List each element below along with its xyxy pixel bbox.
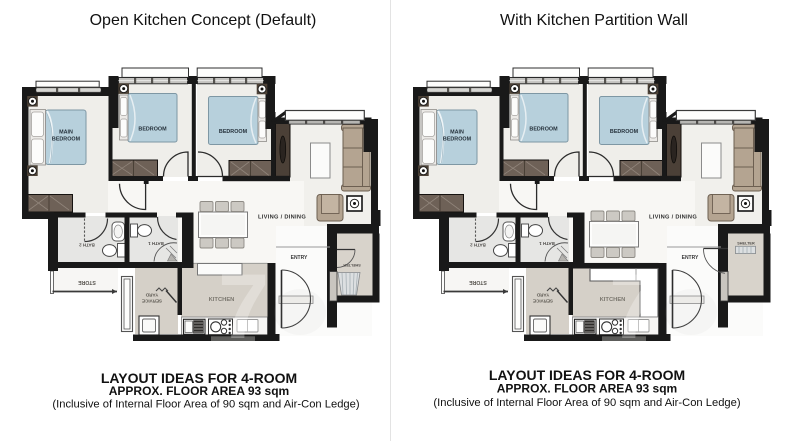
svg-text:BEDROOM: BEDROOM bbox=[610, 129, 639, 135]
svg-text:BATH 1: BATH 1 bbox=[148, 241, 164, 246]
svg-text:BATH 2: BATH 2 bbox=[470, 243, 486, 248]
svg-text:SERVICE: SERVICE bbox=[533, 299, 553, 304]
svg-text:(Inclusive of Internal Floor A: (Inclusive of Internal Floor Area of 90 … bbox=[433, 397, 740, 409]
svg-text:SHELTER: SHELTER bbox=[343, 263, 361, 267]
svg-text:SERVICE: SERVICE bbox=[142, 299, 162, 304]
svg-text:APPROX. FLOOR AREA 93 sqm: APPROX. FLOOR AREA 93 sqm bbox=[109, 384, 289, 398]
svg-text:7: 7 bbox=[218, 256, 269, 358]
svg-text:With Kitchen Partition Wall: With Kitchen Partition Wall bbox=[500, 12, 688, 29]
svg-text:(Inclusive of Internal Floor A: (Inclusive of Internal Floor Area of 90 … bbox=[52, 399, 359, 411]
svg-text:BEDROOM: BEDROOM bbox=[443, 137, 472, 143]
svg-text:BATH 1: BATH 1 bbox=[539, 241, 555, 246]
svg-text:SHELTER: SHELTER bbox=[737, 242, 755, 246]
svg-text:STORE: STORE bbox=[78, 279, 96, 285]
svg-text:YARD: YARD bbox=[536, 293, 549, 298]
svg-text:ENTRY: ENTRY bbox=[291, 255, 308, 261]
svg-text:BATH 2: BATH 2 bbox=[79, 243, 95, 248]
svg-text:BEDROOM: BEDROOM bbox=[138, 127, 167, 133]
svg-text:ENTRY: ENTRY bbox=[682, 255, 699, 261]
svg-text:APPROX. FLOOR AREA 93 sqm: APPROX. FLOOR AREA 93 sqm bbox=[497, 382, 677, 396]
svg-text:BEDROOM: BEDROOM bbox=[219, 129, 248, 135]
svg-text:BEDROOM: BEDROOM bbox=[52, 137, 81, 143]
svg-text:MAIN: MAIN bbox=[450, 130, 464, 136]
svg-text:MAIN: MAIN bbox=[59, 130, 73, 136]
svg-text:LIVING / DINING: LIVING / DINING bbox=[649, 215, 697, 221]
svg-text:LIVING / DINING: LIVING / DINING bbox=[258, 215, 306, 221]
svg-text:Open Kitchen Concept (Default): Open Kitchen Concept (Default) bbox=[90, 12, 317, 29]
svg-text:7: 7 bbox=[609, 256, 660, 358]
svg-text:STORE: STORE bbox=[469, 279, 487, 285]
svg-text:BEDROOM: BEDROOM bbox=[529, 127, 558, 133]
svg-text:YARD: YARD bbox=[145, 293, 158, 298]
